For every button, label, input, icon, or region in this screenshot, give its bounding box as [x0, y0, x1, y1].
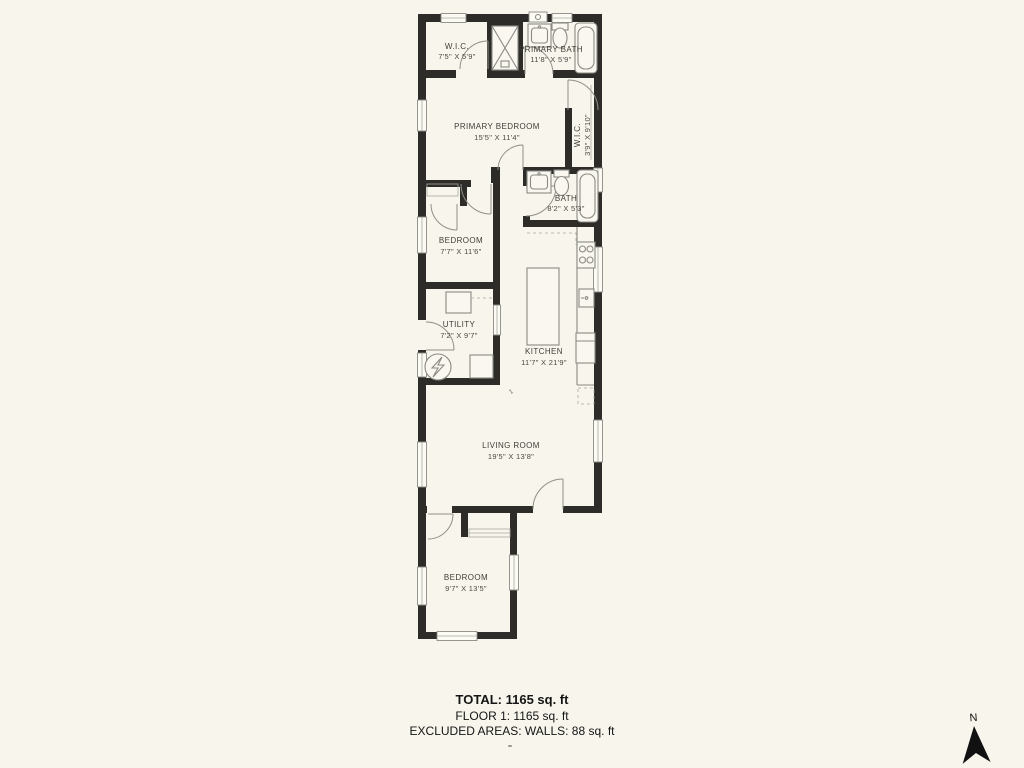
room-dims: 15'5" X 11'4" — [474, 133, 520, 142]
window — [594, 420, 603, 462]
kitchen-sink-icon — [579, 289, 594, 307]
room-dims: 8'2" X 5'3" — [547, 204, 584, 213]
room-label: W.I.C. — [573, 123, 582, 147]
sink-icon — [527, 171, 551, 193]
shower-icon — [492, 26, 518, 70]
window — [510, 555, 519, 590]
room-dims: 7'5" X 5'9" — [438, 52, 475, 61]
door-closet-mid — [431, 204, 457, 230]
sink-icon — [528, 24, 551, 47]
door-bedroom-bottom — [428, 514, 453, 539]
room-dims: 11'8" X 5'9" — [530, 55, 571, 64]
total-area: TOTAL: 1165 sq. ft — [0, 692, 1024, 709]
window — [437, 632, 477, 641]
refrigerator-icon — [576, 333, 595, 363]
room-label: BEDROOM — [444, 573, 488, 582]
door-entry — [533, 479, 563, 509]
room-label: UTILITY — [443, 320, 476, 329]
room-dims: 19'5" X 13'8" — [488, 452, 534, 461]
vanity-sink-icon — [529, 12, 547, 22]
door-wic-right — [568, 80, 598, 110]
washer-icon — [446, 292, 493, 313]
door-primary-bedroom — [498, 145, 523, 170]
floor-area: FLOOR 1: 1165 sq. ft — [0, 709, 1024, 724]
room-dims: 3'9" X 9'10" — [583, 114, 592, 156]
window — [552, 14, 572, 23]
bathtub-icon — [577, 170, 598, 222]
room-dims: 7'7" X 11'6" — [440, 247, 481, 256]
sliding-door — [494, 305, 501, 335]
doors — [426, 41, 598, 539]
floor-plan-page: W.I.C. 7'5" X 5'9" PRIMARY BATH 11'8" X … — [0, 0, 1024, 768]
room-label: KITCHEN — [525, 347, 563, 356]
closet-shelf — [469, 529, 510, 537]
room-label: W.I.C. — [445, 42, 469, 51]
window — [418, 100, 427, 131]
window — [441, 14, 466, 23]
stove-icon — [577, 242, 595, 268]
dryer-icon — [470, 355, 493, 378]
room-dims: 9'7" X 13'5" — [445, 584, 487, 593]
small-mark — [509, 389, 513, 394]
room-label: BATH — [555, 194, 577, 203]
room-dims: 11'7" X 21'9" — [521, 358, 567, 367]
room-label-rotated: W.I.C. 3'9" X 9'10" — [573, 114, 592, 156]
small-mark — [508, 745, 512, 747]
toilet-icon — [554, 170, 569, 196]
room-label: PRIMARY BATH — [519, 45, 583, 54]
room-label: BEDROOM — [439, 236, 483, 245]
excluded-area: EXCLUDED AREAS: WALLS: 88 sq. ft — [0, 724, 1024, 739]
room-label: LIVING ROOM — [482, 441, 540, 450]
window — [418, 217, 427, 253]
window — [418, 567, 427, 605]
window — [418, 442, 427, 487]
kitchen-island — [527, 268, 559, 345]
room-label: PRIMARY BEDROOM — [454, 122, 540, 131]
room-dims: 7'2" X 9'7" — [440, 331, 477, 340]
area-summary: TOTAL: 1165 sq. ft FLOOR 1: 1165 sq. ft … — [0, 692, 1024, 739]
floor-plan: W.I.C. 7'5" X 5'9" PRIMARY BATH 11'8" X … — [0, 0, 1024, 768]
water-heater-icon — [425, 354, 451, 380]
